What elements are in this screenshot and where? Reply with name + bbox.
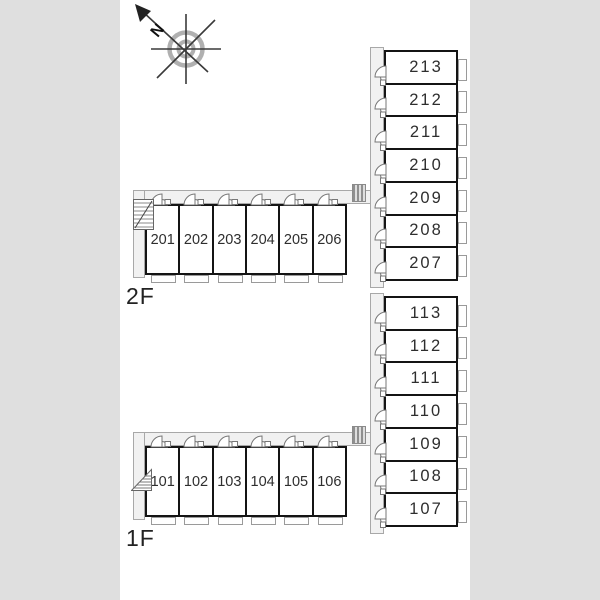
room-number: 204: [251, 232, 275, 248]
balcony: [151, 275, 176, 283]
door-swing-icon: [373, 196, 387, 222]
room-109: 109: [384, 427, 458, 460]
room-number: 205: [284, 232, 308, 248]
balcony: [458, 91, 467, 113]
room-204: 204: [245, 204, 278, 275]
room-number: 212: [399, 91, 443, 110]
room-number: 108: [399, 467, 443, 486]
balcony: [318, 275, 343, 283]
north-arrow-icon: [135, 4, 151, 22]
room-208: 208: [384, 214, 458, 247]
floor-label-1f: 1F: [126, 525, 155, 552]
door-swing-icon: [283, 192, 309, 206]
door-swing-icon: [373, 97, 387, 123]
balcony: [184, 275, 209, 283]
room-number: 112: [400, 337, 442, 356]
room-103: 103: [212, 446, 245, 517]
door-swing-icon: [317, 192, 343, 206]
room-105: 105: [278, 446, 311, 517]
room-number: 206: [317, 232, 341, 248]
room-107: 107: [384, 492, 458, 527]
room-111: 111: [384, 361, 458, 394]
balcony: [151, 517, 176, 525]
room-104: 104: [245, 446, 278, 517]
north-label: N: [148, 21, 168, 41]
balcony: [458, 370, 467, 392]
door-swing-icon: [373, 507, 387, 533]
room-211: 211: [384, 115, 458, 148]
balcony: [251, 275, 276, 283]
balcony: [458, 403, 467, 425]
room-number: 104: [251, 474, 275, 490]
room-number: 106: [317, 474, 341, 490]
balcony: [458, 468, 467, 490]
room-number: 105: [284, 474, 308, 490]
balcony: [458, 124, 467, 146]
room-number: 203: [217, 232, 241, 248]
room-number: 211: [400, 123, 442, 142]
room-213: 213: [384, 50, 458, 83]
compass-rose-icon: N: [128, 2, 238, 94]
room-number: 210: [399, 156, 443, 175]
room-number: 102: [184, 474, 208, 490]
wall-pillar-1f: [352, 426, 366, 444]
balcony: [458, 59, 467, 81]
balcony: [184, 517, 209, 525]
door-swing-icon: [250, 434, 276, 448]
room-203: 203: [212, 204, 245, 275]
door-swing-icon: [217, 192, 243, 206]
staircase-2f-icon: [133, 199, 154, 230]
floor-label-2f: 2F: [126, 283, 155, 310]
door-swing-icon: [183, 192, 209, 206]
balcony: [318, 517, 343, 525]
door-swing-icon: [373, 65, 387, 91]
room-210: 210: [384, 148, 458, 181]
balcony: [284, 275, 309, 283]
room-205: 205: [278, 204, 311, 275]
room-212: 212: [384, 83, 458, 116]
door-swing-icon: [373, 163, 387, 189]
room-number: 111: [400, 369, 441, 388]
room-number: 107: [399, 500, 443, 519]
balcony: [458, 337, 467, 359]
door-swing-icon: [150, 434, 176, 448]
room-number: 103: [217, 474, 241, 490]
door-swing-icon: [373, 474, 387, 500]
room-108: 108: [384, 460, 458, 493]
door-swing-icon: [250, 192, 276, 206]
balcony: [458, 501, 467, 523]
room-row-1f: 101 102 103 104 105 106: [145, 446, 347, 517]
door-swing-icon: [317, 434, 343, 448]
door-swing-icon: [373, 409, 387, 435]
door-swing-icon: [217, 434, 243, 448]
floor-plan-screenshot: N 201 202 203: [0, 0, 600, 600]
door-swing-icon: [373, 343, 387, 369]
room-number: 208: [399, 221, 443, 240]
room-number: 202: [184, 232, 208, 248]
balcony: [251, 517, 276, 525]
door-swing-icon: [373, 228, 387, 254]
room-206: 206: [312, 204, 347, 275]
staircase-1f-icon: [131, 468, 152, 491]
room-column-1f: 113 112 111 110 109 108: [384, 296, 458, 527]
balcony: [284, 517, 309, 525]
room-number: 101: [151, 474, 175, 490]
room-207: 207: [384, 246, 458, 281]
balcony: [458, 436, 467, 458]
room-202: 202: [178, 204, 211, 275]
room-number: 113: [400, 304, 442, 323]
room-row-2f: 201 202 203 204 205 206: [145, 204, 347, 275]
room-113: 113: [384, 296, 458, 329]
room-102: 102: [178, 446, 211, 517]
room-number: 213: [399, 58, 443, 77]
room-number: 110: [400, 402, 442, 421]
door-swing-icon: [373, 376, 387, 402]
room-112: 112: [384, 329, 458, 362]
room-number: 201: [151, 232, 175, 248]
door-swing-icon: [283, 434, 309, 448]
door-swing-icon: [373, 130, 387, 156]
wall-pillar-2f: [352, 184, 366, 202]
room-number: 109: [399, 435, 443, 454]
balcony: [218, 517, 243, 525]
room-number: 209: [399, 189, 443, 208]
corridor-joint: [134, 433, 143, 445]
balcony: [458, 190, 467, 212]
room-number: 207: [399, 254, 443, 273]
balcony: [458, 305, 467, 327]
balcony: [458, 255, 467, 277]
balcony: [458, 157, 467, 179]
door-swing-icon: [373, 261, 387, 287]
room-209: 209: [384, 181, 458, 214]
balcony: [458, 222, 467, 244]
door-swing-icon: [183, 434, 209, 448]
balcony: [218, 275, 243, 283]
room-106: 106: [312, 446, 347, 517]
door-swing-icon: [373, 442, 387, 468]
room-110: 110: [384, 394, 458, 427]
door-swing-icon: [373, 311, 387, 337]
room-column-2f: 213 212 211 210 209 208: [384, 50, 458, 281]
